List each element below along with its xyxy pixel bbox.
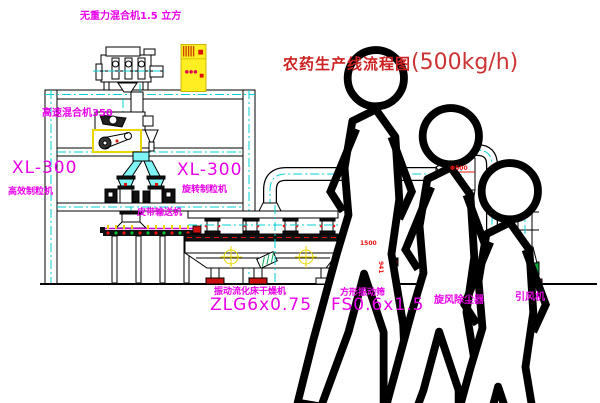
worker-roof (298, 50, 412, 403)
label-xl300-right-name: 旋转制粒机 (182, 186, 227, 195)
mixer2-motor (143, 116, 153, 126)
label-xl300-left-name: 高效制粒机 (8, 188, 53, 197)
mixer2-discharge (145, 130, 158, 142)
title-capacity: (500kg/h) (411, 50, 518, 75)
gravity-free-mixer (93, 47, 164, 112)
label-cyclone: 旋风除尘器 (434, 296, 484, 306)
title-chinese: 农药生产线流程图 (283, 55, 411, 73)
dryer-supports (206, 268, 334, 284)
pesticide-production-line-drawing: 农药生产线流程图(500kg/h) 无重力混合机1.5 立方 高速混合机350 … (0, 0, 600, 403)
drawing-title: 农药生产线流程图(500kg/h) (283, 50, 518, 75)
dryer-top-stubs (205, 218, 336, 234)
control-cabinet-top (181, 44, 206, 91)
label-fan: 引风机 (515, 293, 545, 303)
conveyor-legs (112, 236, 189, 283)
label-xl300-right-model: XL-300 (177, 162, 242, 179)
label-high-speed-mixer: 高速混合机350 (42, 109, 113, 119)
label-dryer-model: ZLG6x0.75 (210, 297, 312, 314)
dimension-screen-length: 1500 (360, 240, 377, 247)
granulators-xl300 (105, 183, 175, 203)
label-screen-model: FS0.6x1.5 (331, 297, 424, 314)
conveyor-head-pulley (193, 226, 201, 233)
label-belt-conveyor: 皮带输送机 (137, 209, 182, 218)
fluid-bed-dryer (185, 211, 338, 284)
label-xl300-left-model: XL-300 (12, 160, 77, 177)
dimension-cyclone: Φ500 (450, 165, 468, 172)
label-gravity-mixer: 无重力混合机1.5 立方 (80, 12, 181, 22)
y-duct (117, 152, 165, 186)
dimension-screen-height: 941 (377, 261, 384, 274)
mixer-down-pipe (131, 92, 143, 112)
